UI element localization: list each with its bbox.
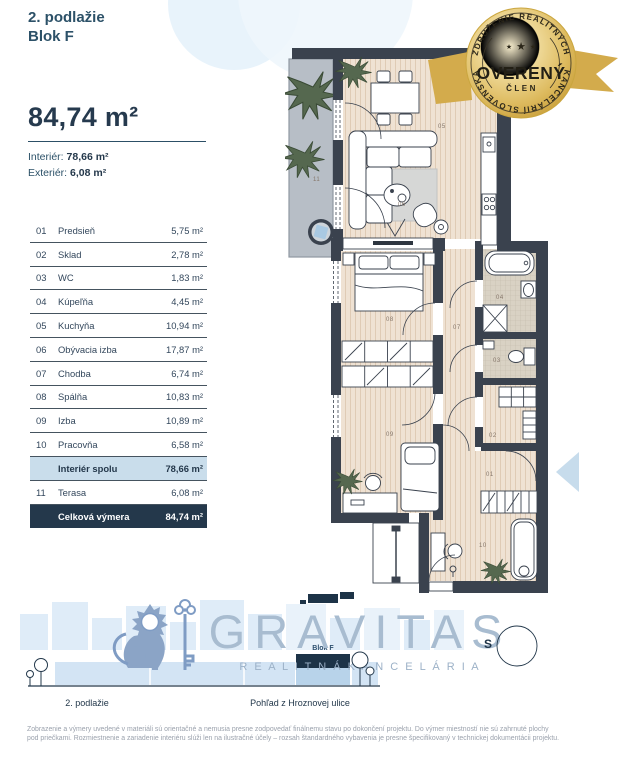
disclaimer-text: Zobrazenie a výmery uvedené v materiáli … bbox=[27, 726, 593, 743]
room-name: Izba bbox=[58, 415, 147, 426]
interior-total-label: Interiér spolu bbox=[58, 463, 147, 474]
room-area: 6,08 m² bbox=[147, 487, 203, 498]
table-row: 01Predsieň5,75 m² bbox=[30, 219, 207, 243]
room-number: 06 bbox=[36, 344, 58, 355]
table-row: 08Spálňa10,83 m² bbox=[30, 386, 207, 410]
floor-title: 2. podlažie bbox=[28, 8, 105, 27]
interior-total-value: 78,66 m² bbox=[147, 463, 203, 474]
room-name: Kúpeľňa bbox=[58, 296, 147, 307]
logo-mark-s: S bbox=[484, 637, 492, 651]
room-number: 07 bbox=[36, 368, 58, 379]
block-title: Blok F bbox=[28, 27, 105, 46]
table-row: 03WC1,83 m² bbox=[30, 267, 207, 291]
table-row: 05Kuchyňa10,94 m² bbox=[30, 314, 207, 338]
room-name: Predsieň bbox=[58, 225, 147, 236]
desk bbox=[431, 533, 445, 571]
room-name: Obývacia izba bbox=[58, 344, 147, 355]
side-table bbox=[434, 220, 448, 234]
room-label: 03 bbox=[493, 358, 501, 364]
page-title: 2. podlažie Blok F bbox=[28, 8, 105, 46]
room-number: 11 bbox=[36, 487, 58, 498]
room-name: Chodba bbox=[58, 368, 147, 379]
room-number: 02 bbox=[36, 249, 58, 260]
room-label: 08 bbox=[386, 317, 394, 323]
logo-name: GRAVITAS bbox=[209, 605, 512, 658]
table-row: 04Kúpeľňa4,45 m² bbox=[30, 290, 207, 314]
certified-member-badge: ZDRUŽENIE REALITNÝCH KANCELÁRIÍ SLOVENSK… bbox=[420, 0, 620, 140]
hob bbox=[482, 194, 496, 215]
chair bbox=[377, 71, 390, 82]
chair bbox=[377, 114, 390, 125]
tv-board bbox=[373, 241, 413, 245]
room-label: 09 bbox=[386, 432, 394, 438]
room-table: 01Predsieň5,75 m² 02Sklad2,78 m² 03WC1,8… bbox=[30, 219, 207, 528]
room-name: WC bbox=[58, 272, 147, 283]
nightstand bbox=[343, 253, 354, 265]
disclaimer-line: Zobrazenie a výmery uvedené v materiáli … bbox=[27, 726, 593, 735]
table-row: 09Izba10,89 m² bbox=[30, 409, 207, 433]
nightstand bbox=[424, 253, 435, 265]
room-number: 05 bbox=[36, 320, 58, 331]
toilet bbox=[524, 348, 535, 365]
star-icon: ★ bbox=[530, 43, 536, 51]
room-name: Kuchyňa bbox=[58, 320, 147, 331]
entrance-door bbox=[429, 582, 453, 591]
room-label: 02 bbox=[489, 433, 497, 439]
room-name: Sklad bbox=[58, 249, 147, 260]
interior-label: Interiér: bbox=[28, 151, 64, 163]
area-breakdown: Interiér: 78,66 m² Exteriér: 6,08 m² bbox=[28, 149, 109, 181]
chair bbox=[448, 544, 462, 558]
badge-title: OVERENÝ bbox=[476, 62, 565, 83]
room-label: 07 bbox=[453, 325, 461, 331]
room-label: 04 bbox=[496, 295, 504, 301]
room-name: Spálňa bbox=[58, 391, 147, 402]
table-row: 06Obývacia izba17,87 m² bbox=[30, 338, 207, 362]
coffee-table bbox=[384, 184, 410, 206]
daybed bbox=[511, 519, 537, 580]
room-area: 6,58 m² bbox=[147, 439, 203, 450]
exterior-value: 6,08 m² bbox=[70, 167, 106, 179]
star-icon: ★ bbox=[506, 43, 512, 51]
room-area: 5,75 m² bbox=[147, 225, 203, 236]
room-area: 17,87 m² bbox=[147, 344, 203, 355]
table-row: 10Pracovňa6,58 m² bbox=[30, 433, 207, 457]
table-row: 07Chodba6,74 m² bbox=[30, 362, 207, 386]
elevation-floor-label: 2. podlažie bbox=[32, 698, 142, 708]
chair bbox=[399, 114, 412, 125]
interior-value: 78,66 m² bbox=[67, 151, 109, 163]
room-area: 10,89 m² bbox=[147, 415, 203, 426]
room-area: 2,78 m² bbox=[147, 249, 203, 260]
room-area: 4,45 m² bbox=[147, 296, 203, 307]
gravitas-logo-block: Blok F GRAVITAS R E A L I T N Á K A N C … bbox=[0, 592, 620, 697]
room-label: 11 bbox=[313, 177, 320, 183]
floorplan-page: 2. podlažie Blok F 84,74 m² Interiér: 78… bbox=[0, 0, 620, 758]
grand-total-value: 84,74 m² bbox=[147, 511, 203, 522]
exterior-area: Exteriér: 6,08 m² bbox=[28, 165, 109, 181]
total-area-value: 84,74 m² bbox=[28, 102, 138, 133]
room-name: Pracovňa bbox=[58, 439, 147, 450]
carousel-prev-arrow-icon[interactable] bbox=[556, 452, 579, 492]
room-number: 08 bbox=[36, 391, 58, 402]
room-area: 6,74 m² bbox=[147, 368, 203, 379]
badge-subtitle: ČLEN bbox=[506, 84, 538, 93]
elevation-view-label: Pohľad z Hroznovej ulice bbox=[225, 698, 375, 708]
room-number: 04 bbox=[36, 296, 58, 307]
room-label: 01 bbox=[486, 472, 494, 478]
interior-area: Interiér: 78,66 m² bbox=[28, 149, 109, 165]
table-row: 11Terasa6,08 m² bbox=[30, 481, 207, 505]
dining-table bbox=[371, 83, 419, 113]
ribbon-left bbox=[428, 52, 472, 104]
room-name: Terasa bbox=[58, 487, 147, 498]
chair bbox=[399, 71, 412, 82]
grand-total-row: Celková výmera84,74 m² bbox=[30, 505, 207, 529]
bathtub bbox=[485, 251, 534, 275]
interior-total-row: Interiér spolu78,66 m² bbox=[30, 457, 207, 481]
terrace bbox=[285, 59, 339, 257]
small-sink bbox=[483, 341, 494, 349]
grand-total-label: Celková výmera bbox=[58, 511, 147, 522]
disclaimer-line: pod priečkami. Rozmiestnenie a zariadeni… bbox=[27, 735, 593, 744]
room-label: 10 bbox=[479, 543, 487, 549]
room-number: 03 bbox=[36, 272, 58, 283]
chair bbox=[366, 476, 381, 491]
room-number: 01 bbox=[36, 225, 58, 236]
room-area: 1,83 m² bbox=[147, 272, 203, 283]
room-number: 09 bbox=[36, 415, 58, 426]
room-area: 10,83 m² bbox=[147, 391, 203, 402]
exterior-label: Exteriér: bbox=[28, 167, 67, 179]
room-area: 10,94 m² bbox=[147, 320, 203, 331]
room-label: 06 bbox=[398, 202, 406, 208]
table-row: 02Sklad2,78 m² bbox=[30, 243, 207, 267]
room-number: 10 bbox=[36, 439, 58, 450]
divider-line bbox=[28, 141, 206, 142]
star-icon: ★ bbox=[516, 41, 526, 53]
